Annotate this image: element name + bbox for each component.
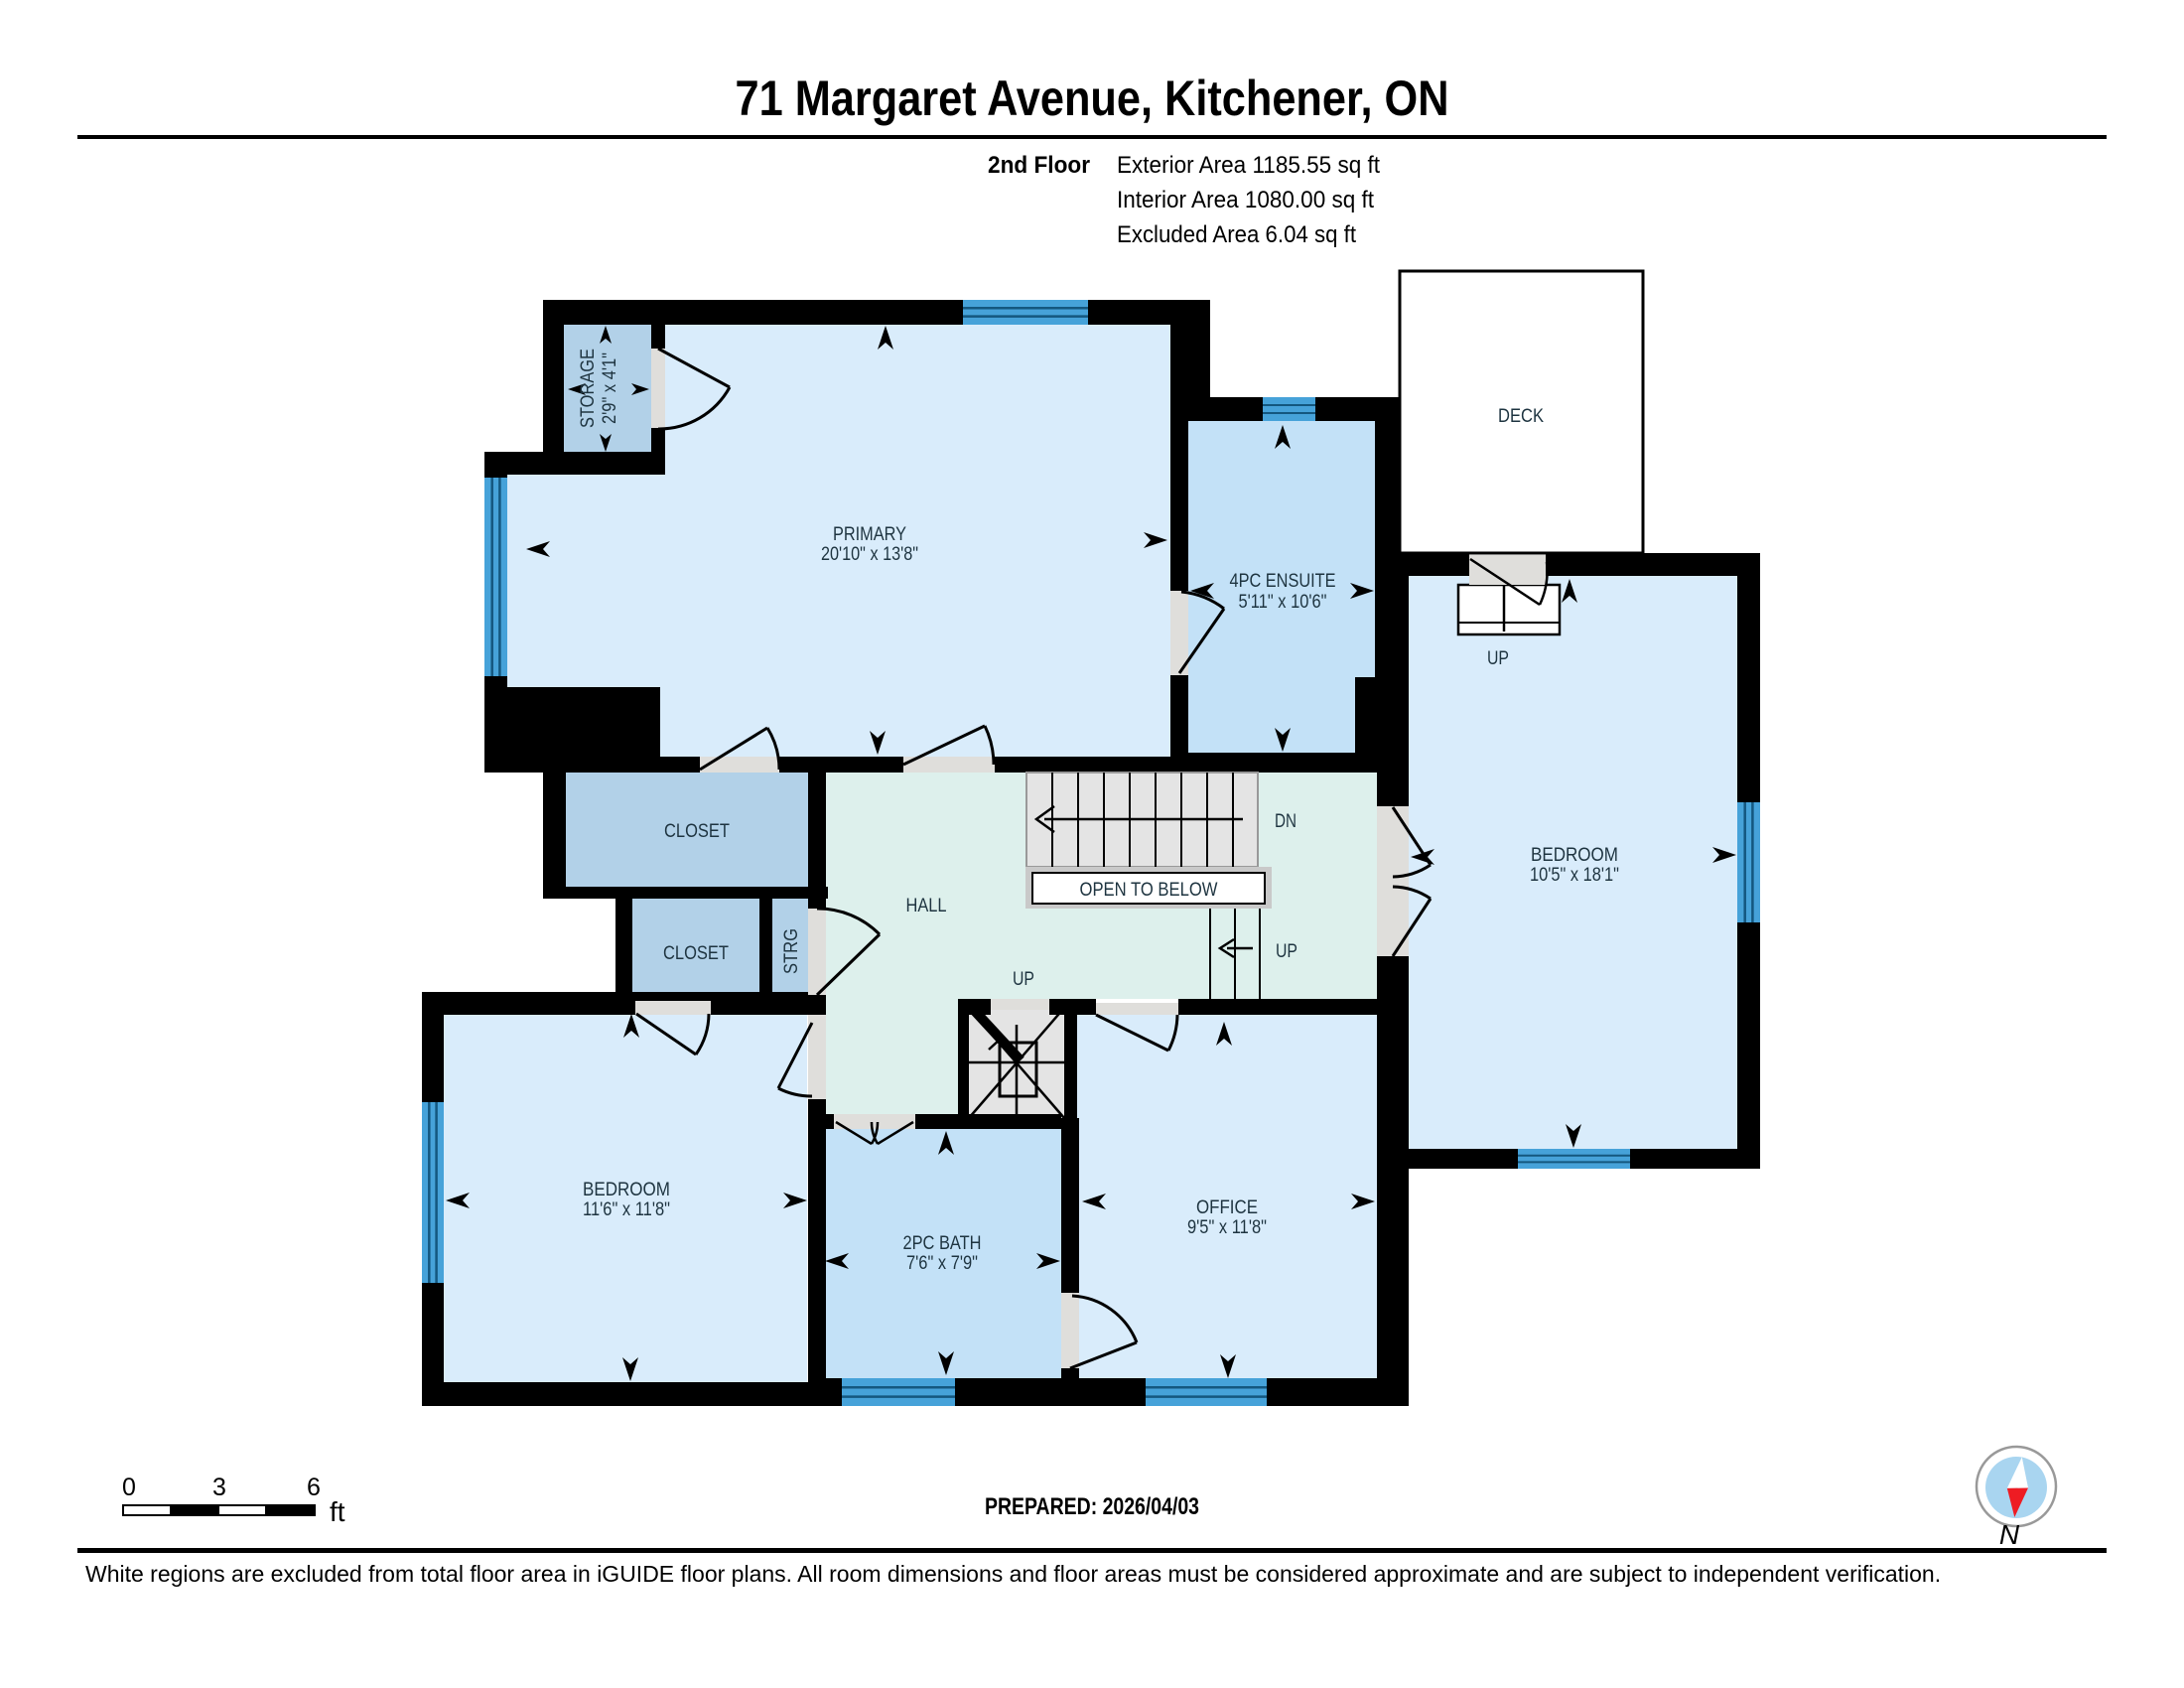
svg-text:CLOSET: CLOSET <box>664 821 730 842</box>
svg-text:6: 6 <box>307 1474 321 1501</box>
svg-text:PREPARED: 2026/04/03: PREPARED: 2026/04/03 <box>985 1493 1199 1520</box>
svg-text:UP: UP <box>1013 969 1034 990</box>
svg-text:5'11" x 10'6": 5'11" x 10'6" <box>1239 592 1327 613</box>
svg-text:11'6" x 11'8": 11'6" x 11'8" <box>583 1199 670 1220</box>
svg-text:71 Margaret Avenue, Kitchener,: 71 Margaret Avenue, Kitchener, ON <box>736 70 1449 126</box>
svg-text:4PC ENSUITE: 4PC ENSUITE <box>1230 571 1336 592</box>
svg-text:OPEN TO BELOW: OPEN TO BELOW <box>1080 880 1218 901</box>
svg-text:20'10" x 13'8": 20'10" x 13'8" <box>821 544 918 565</box>
svg-text:PRIMARY: PRIMARY <box>833 524 906 545</box>
svg-text:White regions are excluded fro: White regions are excluded from total fl… <box>85 1561 1941 1587</box>
svg-text:UP: UP <box>1487 648 1509 669</box>
svg-text:BEDROOM: BEDROOM <box>583 1180 670 1200</box>
svg-text:10'5" x 18'1": 10'5" x 18'1" <box>1530 865 1619 886</box>
svg-text:STORAGE: STORAGE <box>578 349 599 428</box>
svg-text:STRG: STRG <box>781 928 802 974</box>
svg-text:N: N <box>1999 1519 2020 1550</box>
svg-text:CLOSET: CLOSET <box>663 943 729 964</box>
svg-text:2PC BATH: 2PC BATH <box>903 1233 982 1254</box>
svg-text:0: 0 <box>122 1474 136 1501</box>
svg-text:9'5" x 11'8": 9'5" x 11'8" <box>1187 1217 1267 1238</box>
svg-text:HALL: HALL <box>906 896 947 916</box>
svg-text:3: 3 <box>212 1474 226 1501</box>
svg-text:DECK: DECK <box>1498 406 1544 427</box>
svg-text:UP: UP <box>1276 941 1297 962</box>
svg-text:7'6" x 7'9": 7'6" x 7'9" <box>906 1253 978 1274</box>
svg-text:BEDROOM: BEDROOM <box>1531 845 1618 866</box>
svg-text:2nd Floor: 2nd Floor <box>988 152 1090 179</box>
svg-text:2'9" x 4'1": 2'9" x 4'1" <box>600 352 620 424</box>
svg-text:Interior Area 1080.00 sq ft: Interior Area 1080.00 sq ft <box>1117 187 1374 213</box>
svg-text:DN: DN <box>1275 811 1297 832</box>
svg-text:OFFICE: OFFICE <box>1196 1197 1258 1218</box>
svg-text:ft: ft <box>330 1496 345 1527</box>
svg-text:Exterior Area 1185.55 sq ft: Exterior Area 1185.55 sq ft <box>1117 152 1380 179</box>
svg-text:Excluded Area 6.04 sq ft: Excluded Area 6.04 sq ft <box>1117 221 1356 248</box>
